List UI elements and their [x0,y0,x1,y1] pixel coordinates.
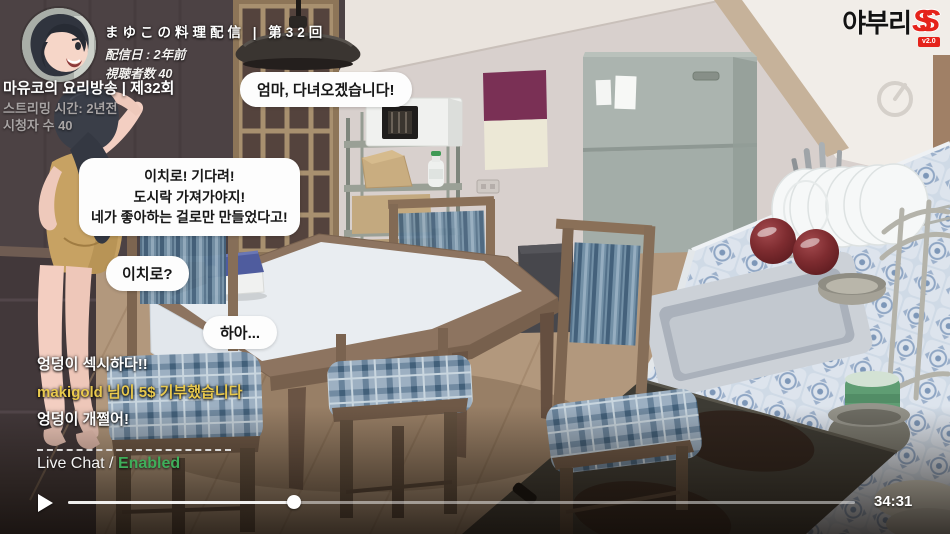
progress-played [68,501,294,504]
chat-message: 엉덩이 섹시하다!! [37,353,148,374]
wall-outlet [477,180,499,193]
avatar-illustration [22,8,96,82]
power-watermark-icon [874,75,916,119]
speech-bubble-wait: 이치로! 기다려! 도시락 가져가야지! 네가 좋아하는 걸로만 만들었다고! [79,158,300,236]
stream-title-jp: まゆこの料理配信 | 第32回 [105,21,326,41]
stream-date: 配信日 : 2年前 [105,44,186,63]
bubble-line: 이치로! 기다려! [91,166,288,187]
bubble-line: 도시락 가져가야지! [91,187,288,208]
chat-message-donation: makigold 님이 5$ 기부했습니다 [37,381,242,402]
logo-text: 야부리 [842,8,911,38]
progress-knob[interactable] [287,495,301,509]
chat-divider [37,449,231,451]
play-icon[interactable] [38,494,53,512]
version-badge: v2.0 [918,37,940,47]
speech-bubble-goodbye: 엄마, 다녀오겠습니다! [240,72,412,107]
avatar [22,8,96,82]
time-display: 34:31 [874,493,912,510]
speech-bubble-ichiro: 이치로? [106,256,189,291]
live-chat-label: Live Chat / [37,455,118,472]
chat-message: 엉덩이 개쩔어! [37,408,129,429]
video-player: まゆこの料理配信 | 第32回 配信日 : 2年前 視聴者数 40 마유코의 요… [0,0,950,534]
site-logo: 야부리 SS v2.0 [842,8,948,52]
logo-ss-mark: SS v2.0 [912,8,948,52]
live-chat-status: Enabled [118,455,180,472]
wall-poster [483,70,548,170]
speech-bubble-sigh: 하아... [203,316,277,349]
ss-icon: SS [912,4,927,38]
viewer-count-kr: 시청자 수 40 [3,115,73,134]
live-chat-toggle[interactable]: Live Chat / Enabled [37,455,180,473]
bubble-line: 네가 좋아하는 걸로만 만들었다고! [91,207,288,228]
stream-title-kr: 마유코의 요리방송 | 제32회 [3,77,174,98]
